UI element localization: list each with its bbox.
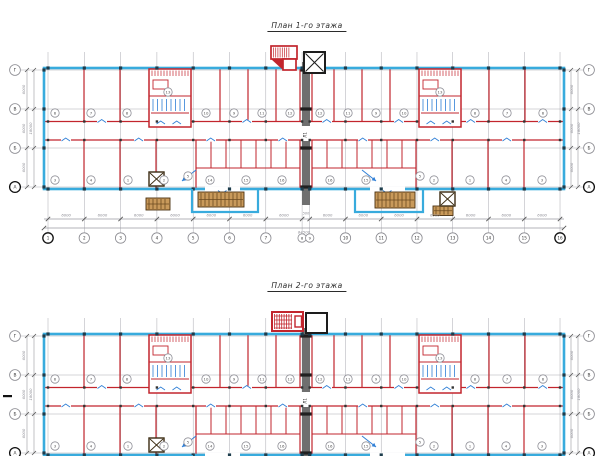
room-number: 15 [364, 178, 369, 183]
column-marker [42, 373, 45, 376]
column-marker [380, 386, 382, 388]
dimension-label: 6000 [21, 350, 26, 360]
column-marker [451, 332, 454, 335]
column-marker [228, 386, 230, 388]
room-number: 12 [288, 111, 293, 116]
column-marker [228, 139, 230, 141]
column-axis-label: 5 [192, 236, 195, 241]
column-marker [46, 187, 49, 190]
column-marker [562, 146, 565, 149]
column-marker [559, 405, 561, 407]
column-marker [562, 68, 565, 71]
column-marker [452, 405, 454, 407]
column-marker [416, 405, 418, 407]
dimension-label: 6000 [466, 213, 476, 218]
column-marker [558, 332, 561, 335]
toilet-block [149, 69, 191, 127]
dimension-label: 6000 [21, 389, 26, 399]
column-marker [47, 386, 49, 388]
column-marker [523, 405, 525, 407]
column-marker [452, 120, 454, 122]
column-marker [119, 332, 122, 335]
column-marker [228, 120, 230, 122]
column-marker [562, 373, 565, 376]
legend-symbol [283, 59, 296, 70]
column-marker [228, 187, 231, 190]
column-marker [309, 139, 311, 141]
column-marker [301, 187, 304, 190]
column-marker [155, 332, 158, 335]
row-axis-label: Г [588, 334, 591, 340]
room-number: 10 [204, 111, 209, 116]
column-marker [228, 332, 231, 335]
column-marker [487, 66, 490, 69]
column-marker [415, 187, 418, 190]
shaft-box [306, 313, 327, 333]
column-marker [523, 139, 525, 141]
room-number: 11 [260, 377, 265, 382]
dimension-label: 6000 [98, 213, 108, 218]
dimension-label: 6000 [537, 213, 547, 218]
column-marker [344, 187, 347, 190]
room-number: 14 [208, 178, 213, 183]
room-number: 15 [364, 444, 369, 449]
room-number: 16 [328, 444, 333, 449]
wall-opening [370, 187, 405, 192]
room-number: 13 [166, 356, 171, 361]
column-marker [416, 139, 418, 141]
column-marker [42, 185, 45, 188]
column-marker [487, 332, 490, 335]
core-label: Л1 [303, 398, 308, 404]
column-marker [415, 332, 418, 335]
column-axis-label: 12 [414, 236, 420, 241]
dimension-label: 6000 [243, 213, 253, 218]
dimension-label: 6000 [134, 213, 144, 218]
room-number: 11 [346, 377, 351, 382]
column-marker [558, 187, 561, 190]
column-marker [452, 386, 454, 388]
legend-symbol [271, 46, 297, 59]
column-marker [301, 386, 303, 388]
column-marker [415, 66, 418, 69]
column-axis-label: 9 [309, 237, 311, 241]
dimension-label: 6000 [569, 84, 574, 94]
column-marker [300, 412, 311, 415]
column-marker [380, 139, 382, 141]
column-axis-label: 14 [486, 236, 492, 241]
legend-symbol [295, 316, 302, 327]
column-marker [119, 66, 122, 69]
column-marker [119, 405, 121, 407]
column-marker [46, 332, 49, 335]
column-axis-label: 7 [264, 236, 267, 241]
column-axis-label: 1 [47, 236, 50, 241]
wall-opening [205, 453, 240, 456]
room-number: 13 [438, 356, 443, 361]
column-marker [523, 332, 526, 335]
row-axis-label: Б [587, 412, 590, 418]
column-marker [301, 120, 303, 122]
column-marker [344, 66, 347, 69]
room-number: 12 [288, 377, 293, 382]
dimension-label: 18000 [576, 122, 581, 135]
column-marker [192, 120, 194, 122]
room-number: 12 [318, 111, 323, 116]
column-marker [83, 139, 85, 141]
dimension-label: 6000 [21, 162, 26, 172]
column-marker [301, 405, 303, 407]
column-marker [42, 107, 45, 110]
column-marker [156, 405, 158, 407]
column-axis-label: 10 [343, 236, 349, 241]
dimension-label: 6000 [394, 213, 404, 218]
column-marker [309, 120, 311, 122]
column-marker [416, 120, 418, 122]
column-marker [264, 332, 267, 335]
column-marker [562, 334, 565, 337]
dimension-label: 6000 [569, 389, 574, 399]
room-number: 16 [280, 444, 285, 449]
column-marker [416, 386, 418, 388]
column-axis-label: 6 [228, 236, 231, 241]
dimension-label: 6000 [61, 213, 71, 218]
column-marker [451, 66, 454, 69]
column-marker [558, 66, 561, 69]
row-axis-label: В [587, 373, 590, 379]
column-marker [309, 405, 311, 407]
column-marker [562, 451, 565, 454]
row-axis-label: Б [13, 146, 16, 152]
column-marker [228, 66, 231, 69]
room-number: 15 [244, 178, 249, 183]
room-number: 11 [346, 111, 351, 116]
dimension-label: 6000 [21, 123, 26, 133]
room-number: 11 [260, 111, 265, 116]
column-marker [119, 187, 122, 190]
floor-plans-svg: Л160006000600018000ГВБА60006000600018000… [0, 0, 610, 456]
column-marker [523, 386, 525, 388]
column-marker [380, 187, 383, 190]
column-marker [562, 185, 565, 188]
column-marker [559, 139, 561, 141]
column-marker [83, 386, 85, 388]
column-marker [309, 386, 311, 388]
room-number: 16 [328, 178, 333, 183]
column-marker [452, 139, 454, 141]
column-marker [156, 139, 158, 141]
column-marker [42, 146, 45, 149]
column-marker [83, 120, 85, 122]
floor-plan-1: Л160006000600018000ГВБА60006000600018000… [10, 46, 595, 243]
dimension-label: 6000 [359, 213, 369, 218]
dimension-label: 6000 [170, 213, 180, 218]
room-number: 12 [318, 377, 323, 382]
dimension-label: 6000 [21, 428, 26, 438]
column-marker [265, 139, 267, 141]
dimension-label: 6000 [279, 213, 289, 218]
dimension-label: 6000 [430, 213, 440, 218]
column-marker [192, 332, 195, 335]
dimension-label: 6000 [502, 213, 512, 218]
column-marker [380, 120, 382, 122]
wall-opening [205, 187, 240, 192]
column-marker [192, 405, 194, 407]
toilet-block [419, 335, 461, 393]
column-marker [344, 139, 346, 141]
column-marker [301, 139, 303, 141]
dimension-label: 6000 [569, 428, 574, 438]
column-marker [156, 386, 158, 388]
column-axis-label: 4 [156, 236, 159, 241]
column-marker [300, 373, 311, 376]
column-axis-label: 3 [119, 236, 122, 241]
column-marker [265, 386, 267, 388]
room-number: 14 [208, 444, 213, 449]
plan-1-title: План 1-го этажа [267, 21, 346, 32]
column-marker [119, 120, 121, 122]
row-axis-label: А [587, 185, 590, 191]
dimension-label: 6000 [21, 84, 26, 94]
column-marker [451, 187, 454, 190]
column-marker [155, 66, 158, 69]
column-marker [264, 66, 267, 69]
dimension-label: 18000 [28, 122, 33, 135]
column-marker [559, 120, 561, 122]
column-marker [523, 120, 525, 122]
column-marker [487, 405, 489, 407]
column-marker [47, 139, 49, 141]
column-marker [344, 405, 346, 407]
row-axis-label: Г [14, 68, 17, 74]
column-marker [344, 332, 347, 335]
column-marker [42, 334, 45, 337]
room-number: 10 [402, 377, 407, 382]
column-marker [562, 412, 565, 415]
drawing-canvas: Л160006000600018000ГВБА60006000600018000… [0, 0, 610, 456]
column-marker [47, 120, 49, 122]
column-marker [83, 187, 86, 190]
column-marker [156, 120, 158, 122]
column-marker [523, 66, 526, 69]
core-label: Л1 [303, 132, 308, 138]
column-marker [42, 451, 45, 454]
room-number: 10 [204, 377, 209, 382]
column-axis-label: 13 [450, 236, 456, 241]
dimension-label: 500 [303, 212, 309, 216]
column-axis-label: 11 [379, 236, 385, 241]
room-number: 13 [438, 90, 443, 95]
column-marker [47, 405, 49, 407]
column-marker [46, 66, 49, 69]
column-marker [487, 386, 489, 388]
column-marker [119, 386, 121, 388]
room-number: 13 [166, 90, 171, 95]
dimension-label: 18000 [576, 388, 581, 401]
column-marker [487, 139, 489, 141]
column-marker [83, 66, 86, 69]
dimension-label: 6000 [207, 213, 217, 218]
column-marker [83, 405, 85, 407]
row-axis-label: А [13, 451, 16, 456]
dimension-label: 6000 [569, 162, 574, 172]
column-marker [192, 139, 194, 141]
wall-opening [370, 453, 405, 456]
column-marker [562, 107, 565, 110]
room-number: 15 [244, 444, 249, 449]
row-axis-label: А [13, 185, 16, 191]
floor-plan-2: Л160006000600018000ГВБА60006000600018000… [10, 312, 595, 456]
row-axis-label: Г [14, 334, 17, 340]
row-axis-label: В [13, 107, 16, 113]
room-number: 16 [280, 178, 285, 183]
room-number: 10 [402, 111, 407, 116]
column-marker [344, 386, 346, 388]
column-marker [487, 187, 490, 190]
column-marker [155, 187, 158, 190]
column-marker [264, 187, 267, 190]
column-marker [265, 405, 267, 407]
dimension-label: 6000 [569, 123, 574, 133]
dimension-label: 6000 [323, 213, 333, 218]
column-axis-label: 16 [557, 236, 563, 241]
plan-2-title: План 2-го этажа [267, 281, 346, 292]
column-axis-label: 2 [83, 236, 86, 241]
column-marker [83, 332, 86, 335]
column-marker [42, 68, 45, 71]
column-marker [559, 386, 561, 388]
column-marker [308, 187, 311, 190]
column-marker [380, 405, 382, 407]
dimension-label: 18000 [28, 388, 33, 401]
row-axis-label: Б [587, 146, 590, 152]
column-marker [487, 120, 489, 122]
column-marker [192, 386, 194, 388]
row-axis-label: В [587, 107, 590, 113]
dimension-label: 6000 [569, 350, 574, 360]
column-marker [300, 146, 311, 149]
section-mark [3, 395, 12, 397]
column-marker [265, 120, 267, 122]
column-marker [380, 332, 383, 335]
row-axis-label: А [587, 451, 590, 456]
column-axis-label: 8 [301, 237, 303, 241]
column-marker [192, 66, 195, 69]
toilet-block [149, 335, 191, 393]
column-axis-label: 15 [522, 236, 528, 241]
row-axis-label: Г [588, 68, 591, 74]
toilet-block [419, 69, 461, 127]
column-marker [301, 332, 304, 335]
column-marker [380, 66, 383, 69]
column-marker [344, 120, 346, 122]
row-axis-label: В [13, 373, 16, 379]
column-marker [42, 412, 45, 415]
column-marker [119, 139, 121, 141]
column-marker [300, 107, 311, 110]
row-axis-label: Б [13, 412, 16, 418]
column-marker [228, 405, 230, 407]
column-marker [523, 187, 526, 190]
